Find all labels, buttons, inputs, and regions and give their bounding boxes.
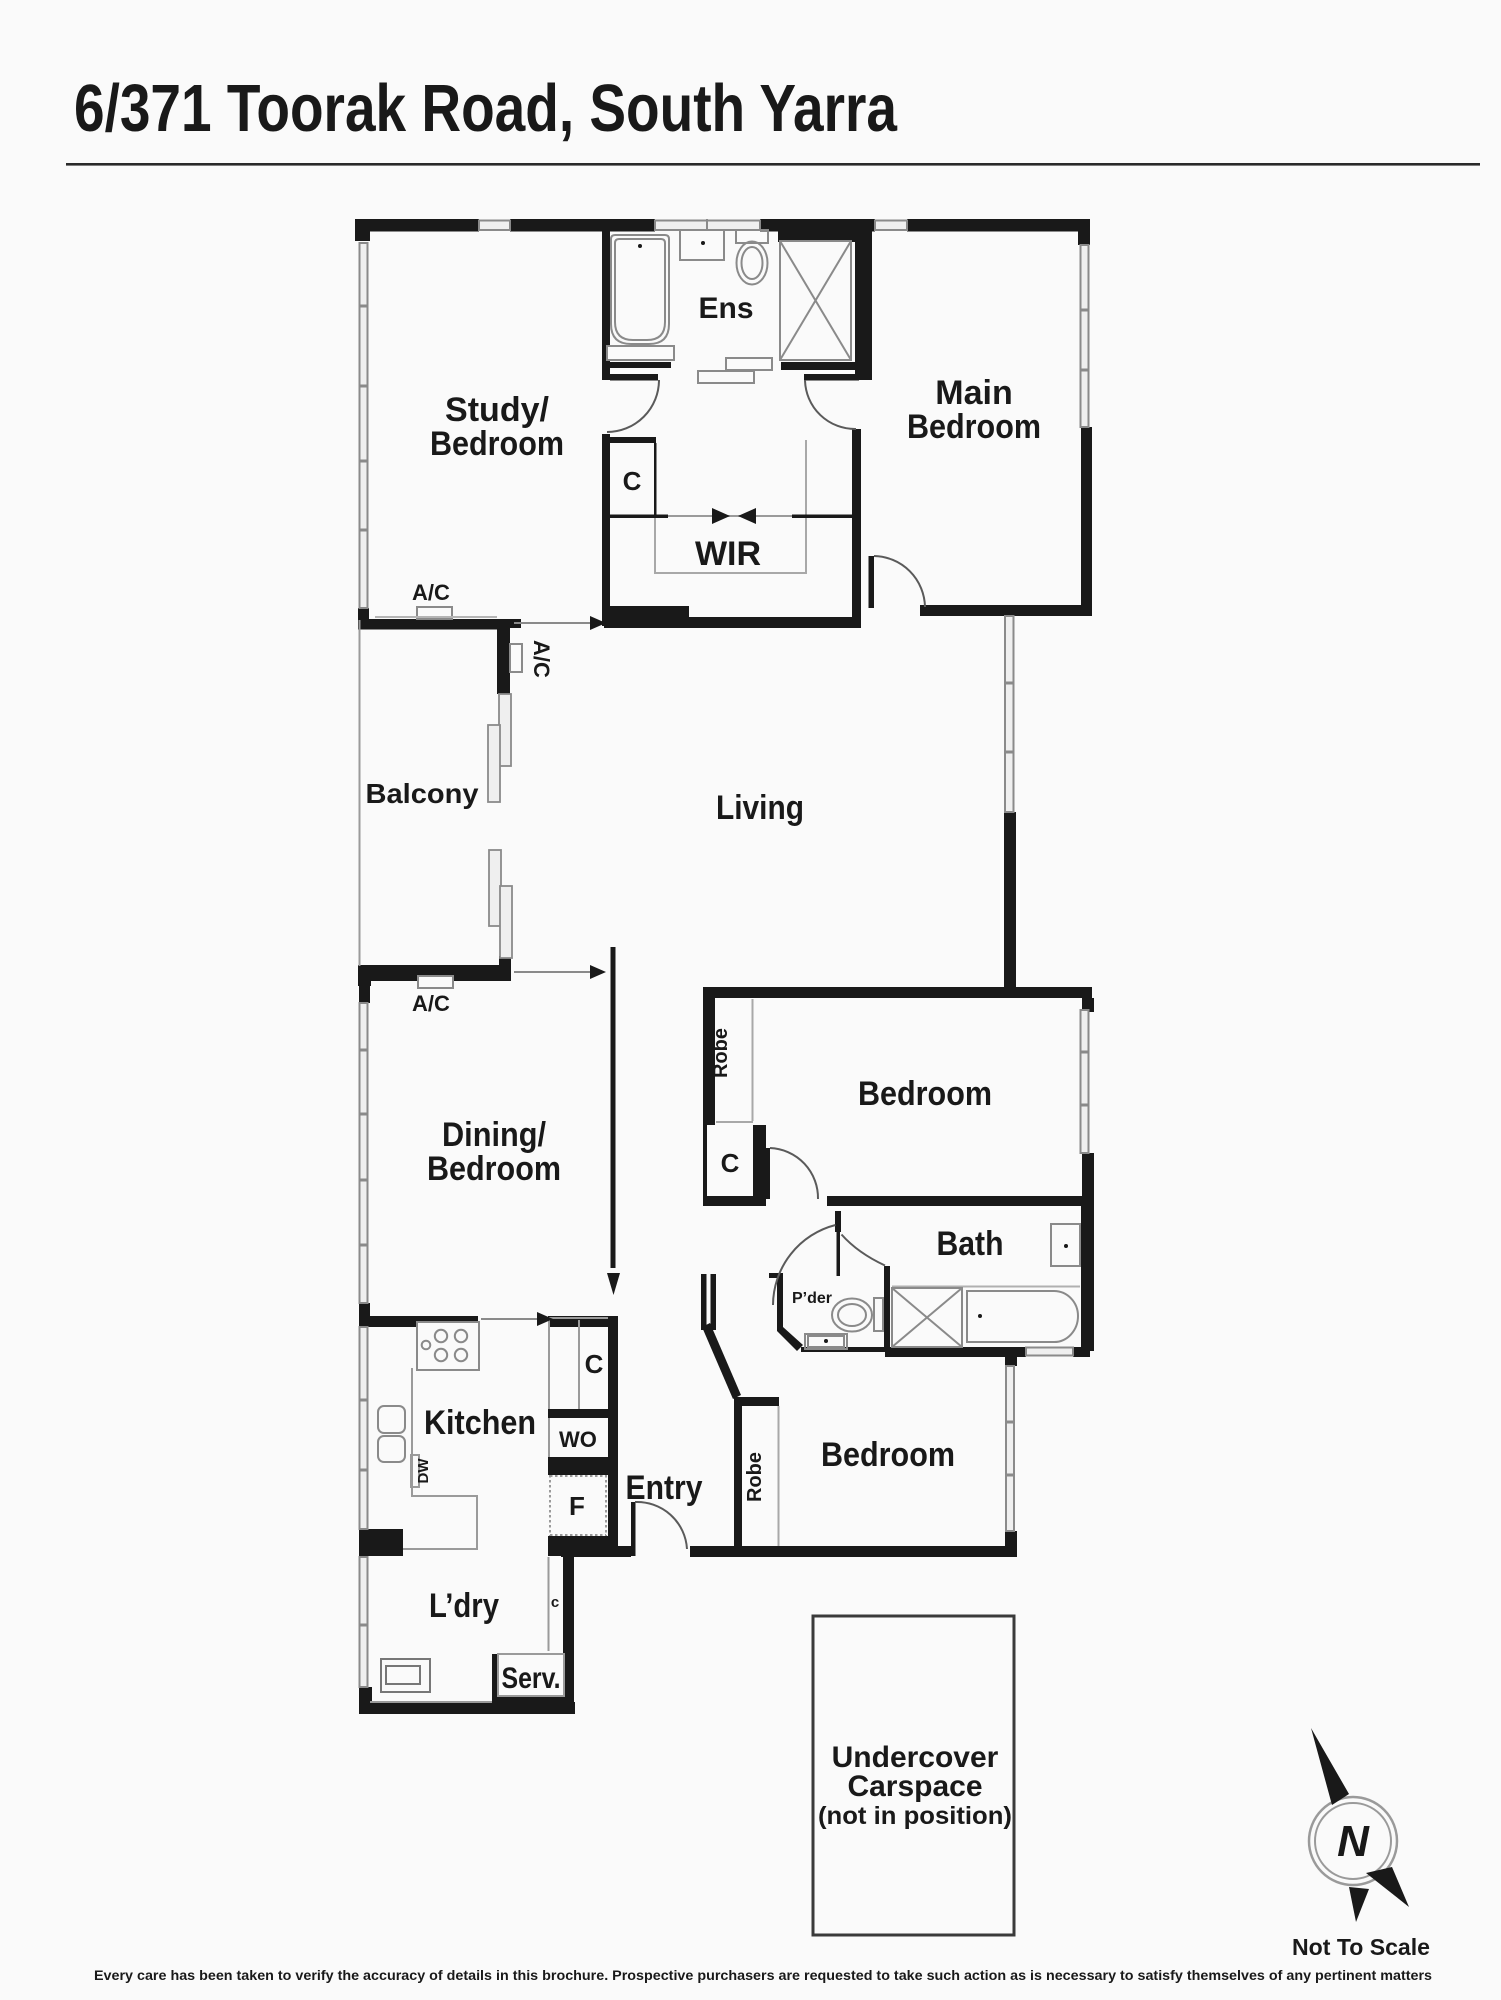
svg-text:WO: WO (559, 1427, 597, 1452)
svg-text:Kitchen: Kitchen (424, 1404, 536, 1442)
svg-text:Bedroom: Bedroom (858, 1075, 992, 1113)
svg-text:Dining/: Dining/ (442, 1116, 546, 1154)
svg-text:P’der: P’der (792, 1290, 832, 1307)
svg-text:Not To Scale: Not To Scale (1292, 1934, 1430, 1960)
svg-text:A/C: A/C (412, 580, 450, 605)
svg-text:Entry: Entry (626, 1469, 703, 1507)
svg-text:Bedroom: Bedroom (427, 1150, 561, 1188)
svg-text:Serv.: Serv. (502, 1662, 561, 1695)
svg-text:Robe: Robe (744, 1452, 766, 1502)
svg-text:6/371 Toorak Road, South Yarra: 6/371 Toorak Road, South Yarra (74, 71, 898, 146)
svg-text:C: C (585, 1349, 604, 1379)
svg-text:Carspace: Carspace (847, 1770, 982, 1803)
svg-text:Every care has been taken to v: Every care has been taken to verify the … (94, 1968, 1432, 1983)
svg-text:DW: DW (415, 1458, 432, 1484)
svg-text:Bedroom: Bedroom (821, 1436, 955, 1474)
svg-text:A/C: A/C (412, 991, 450, 1016)
svg-text:(not in position): (not in position) (818, 1802, 1012, 1830)
svg-text:Bath: Bath (937, 1225, 1004, 1263)
svg-text:Study/: Study/ (445, 391, 549, 429)
svg-text:A/C: A/C (529, 640, 554, 678)
svg-text:Ens: Ens (698, 292, 753, 325)
svg-text:WIR: WIR (695, 535, 761, 573)
svg-text:Living: Living (716, 789, 804, 827)
svg-text:Bedroom: Bedroom (430, 425, 564, 463)
svg-text:Balcony: Balcony (366, 778, 479, 809)
svg-text:C: C (721, 1148, 740, 1178)
svg-text:Robe: Robe (710, 1028, 732, 1078)
svg-text:N: N (1337, 1817, 1370, 1866)
svg-text:C: C (623, 466, 642, 496)
svg-text:c: c (551, 1594, 559, 1611)
svg-text:L’dry: L’dry (429, 1587, 499, 1625)
svg-text:Bedroom: Bedroom (907, 408, 1041, 446)
svg-text:F: F (569, 1491, 585, 1521)
svg-text:Main: Main (935, 374, 1012, 412)
